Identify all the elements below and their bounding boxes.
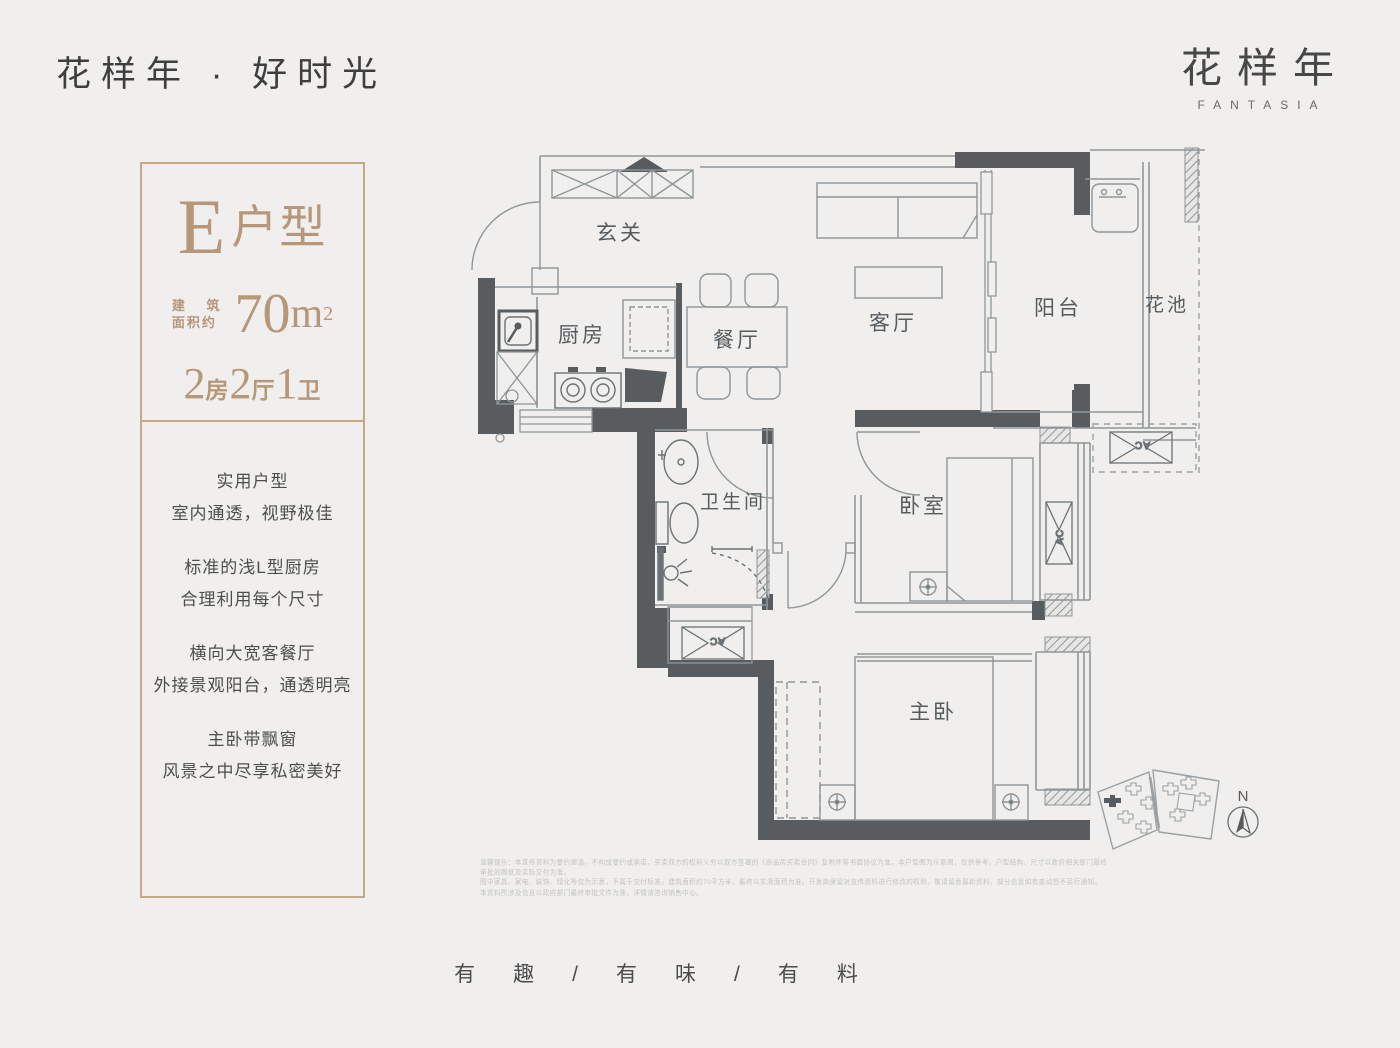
feature-list: 实用户型 室内通透，视野极佳 标准的浅L型厨房 合理利用每个尺寸 横向大宽客餐厅… <box>142 422 363 788</box>
svg-text:N: N <box>1238 788 1249 805</box>
bedroom-nightstand <box>910 572 947 601</box>
master-nightstand-left <box>820 785 855 820</box>
area-value: 70 <box>234 286 290 342</box>
feature-line: 合理利用每个尺寸 <box>142 584 363 616</box>
feature-group: 标准的浅L型厨房 合理利用每个尺寸 <box>142 552 363 616</box>
room-label-dining: 餐厅 <box>713 329 761 352</box>
feature-line: 横向大宽客餐厅 <box>142 638 363 670</box>
brand-title: 花样年 · 好时光 <box>56 46 387 97</box>
unit-suffix: 户型 <box>231 201 327 253</box>
balcony-basin <box>1092 184 1138 232</box>
area-label-line1: 建 筑 <box>172 297 229 314</box>
area-unit: m <box>290 290 323 338</box>
spec-num-rooms: 2 <box>184 359 206 408</box>
spec-num-halls: 2 <box>230 359 252 408</box>
bedroom-door <box>857 432 920 495</box>
floor-plan: AC AC AC <box>450 140 1280 900</box>
north-compass: N <box>1228 788 1258 837</box>
room-label-balcony: 阳台 <box>1034 297 1082 320</box>
master-door <box>773 543 855 608</box>
master-bed <box>855 657 993 820</box>
room-label-flowerbed: 花池 <box>1145 294 1189 316</box>
master-wardrobe <box>776 682 820 818</box>
feature-group: 横向大宽客餐厅 外接景观阳台，通透明亮 <box>142 638 363 702</box>
room-label-bathroom: 卫生间 <box>700 491 766 513</box>
shower <box>658 546 769 602</box>
room-label-kitchen: 厨房 <box>558 324 606 347</box>
svg-text:AC: AC <box>709 635 725 646</box>
spec-num-baths: 1 <box>276 359 298 408</box>
kitchen-stove <box>555 367 621 408</box>
sofa <box>817 183 977 238</box>
spec-unit-halls: 厅 <box>252 377 276 403</box>
disclaimer-line: 本资料所涉及信息以政府部门最终审批文件为准，详情请咨询销售中心。 <box>480 888 1110 898</box>
feature-line: 风景之中尽享私密美好 <box>142 756 363 788</box>
room-label-bedroom: 卧室 <box>899 495 947 518</box>
entry-closet <box>552 170 693 198</box>
feature-group: 实用户型 室内通透，视野极佳 <box>142 466 363 530</box>
area-prefix: 建 筑 面积约 <box>172 297 229 331</box>
spec-unit-baths: 卫 <box>298 377 322 403</box>
area-label-line2: 面积约 <box>172 314 229 331</box>
feature-line: 标准的浅L型厨房 <box>142 552 363 584</box>
feature-line: 主卧带飘窗 <box>142 724 363 756</box>
brand-logo: 花样年 FANTASIA <box>1181 34 1334 112</box>
disclaimer-line: 图中家具、家电、装饰、绿化等仅为示意，不属于交付标准。建筑面积约70平方米，最终… <box>480 878 1110 888</box>
footer-slogan: 有趣/有味/有料 <box>425 958 925 988</box>
room-label-entry: 玄关 <box>596 222 644 245</box>
unit-summary: E户型 建 筑 面积约 70m2 2房2厅1卫 <box>142 164 363 422</box>
room-spec: 2房2厅1卫 <box>184 358 322 409</box>
disclaimer-line: 温馨提示：本宣传资料为要约邀请，不构成要约或承诺，买卖双方的权利义务以双方签署的… <box>480 858 1110 878</box>
kitchen-cabinet <box>497 352 537 404</box>
ac-unit-bathroom: AC <box>668 607 752 663</box>
unit-title: E户型 <box>178 188 328 266</box>
room-label-master: 主卧 <box>909 701 957 724</box>
bathroom-sink <box>658 440 698 484</box>
feature-line: 实用户型 <box>142 466 363 498</box>
feature-line: 外接景观阳台，通透明亮 <box>142 670 363 702</box>
svg-text:AC: AC <box>1055 529 1066 545</box>
kitchen-sink <box>499 311 537 351</box>
coffee-table <box>855 267 942 298</box>
svg-text:AC: AC <box>1134 439 1150 450</box>
hatched-walls <box>757 148 1198 805</box>
spec-unit-rooms: 房 <box>206 377 230 403</box>
room-label-living: 客厅 <box>869 312 917 335</box>
bedroom-bed <box>947 458 1033 601</box>
feature-line: 室内通透，视野极佳 <box>142 498 363 530</box>
disclaimer: 温馨提示：本宣传资料为要约邀请，不构成要约或承诺，买卖双方的权利义务以双方签署的… <box>480 858 1110 898</box>
fridge <box>623 300 675 358</box>
info-panel: E户型 建 筑 面积约 70m2 2房2厅1卫 实用户型 室内通透，视野极佳 标… <box>140 162 365 898</box>
ac-unit-balcony: AC <box>1110 432 1172 463</box>
logo-english: FANTASIA <box>1181 98 1343 112</box>
toilet <box>656 502 698 553</box>
thin-walls <box>495 150 1205 790</box>
area-superscript: 2 <box>323 303 333 326</box>
unit-letter: E <box>178 183 226 270</box>
ac-unit-bedroom: AC <box>1046 502 1072 564</box>
balcony-slider <box>981 170 996 412</box>
feature-group: 主卧带飘窗 风景之中尽享私密美好 <box>142 724 363 788</box>
logo-chinese: 花样年 <box>1181 34 1349 94</box>
walls <box>478 152 1090 840</box>
site-key-plan <box>1098 770 1219 849</box>
area-row: 建 筑 面积约 70m2 <box>172 286 333 342</box>
master-nightstand-right <box>995 785 1028 820</box>
